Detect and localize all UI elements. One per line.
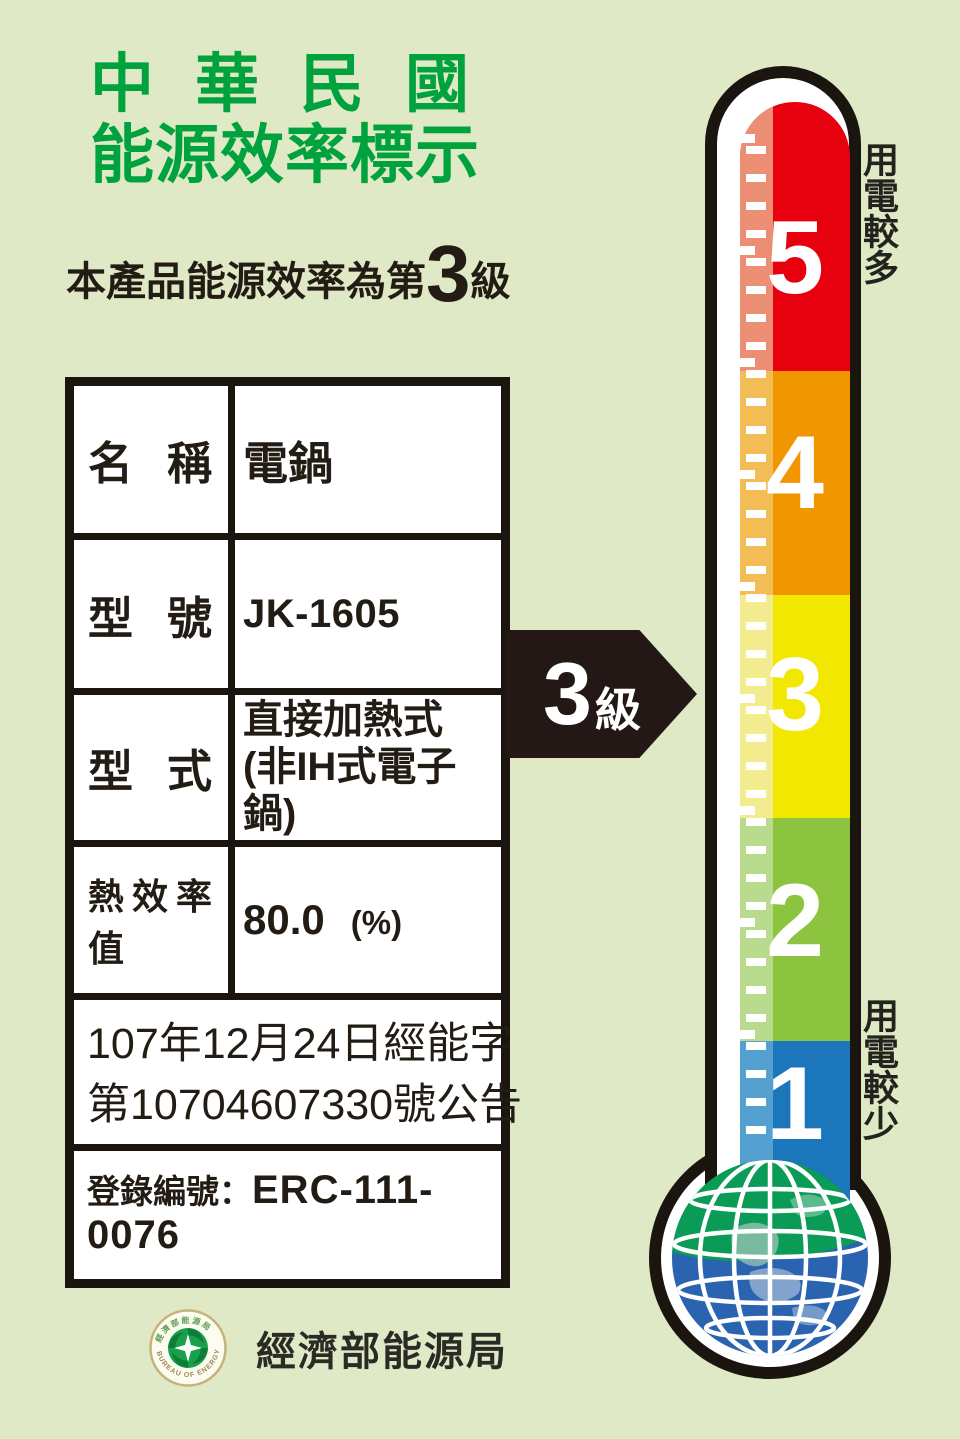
table-row-efficiency: 熱效率值 80.0(%) xyxy=(74,840,501,993)
type-value-line1: 直接加熱式 xyxy=(243,697,501,744)
table-row-type: 型式 直接加熱式 (非IH式電子鍋) xyxy=(74,688,501,840)
level-number-4: 4 xyxy=(740,419,850,527)
level-number-2: 2 xyxy=(740,867,850,975)
bureau-of-energy-seal-icon: 經濟部能源局 BUREAU OF ENERGY xyxy=(148,1308,228,1388)
level-number-3: 3 xyxy=(740,641,850,749)
model-label-cell: 型號 xyxy=(74,540,235,688)
efficiency-value-cell: 80.0(%) xyxy=(235,847,501,993)
label-title: 中華民國 能源效率標示 xyxy=(90,48,510,190)
type-value-line2: (非IH式電子鍋) xyxy=(243,744,501,838)
name-value: 電鍋 xyxy=(243,427,333,492)
tube-column: 5 4 3 2 1 xyxy=(740,102,850,1202)
name-label: 名稱 xyxy=(88,427,212,492)
energy-efficiency-label: 中華民國 能源效率標示 本產品能源效率為第3級 名稱 電鍋 型號 JK-1605… xyxy=(0,0,960,1439)
footer: 經濟部能源局 BUREAU OF ENERGY 經濟部能源局 xyxy=(148,1308,508,1388)
title-line-1: 中華民國 xyxy=(90,48,510,120)
registration: 登錄編號：ERC-111-0076 xyxy=(74,1144,501,1279)
grade-arrow-suffix: 級 xyxy=(595,674,641,740)
model-value-cell: JK-1605 xyxy=(235,540,501,688)
title-line-2: 能源效率標示 xyxy=(90,120,510,190)
type-value-cell: 直接加熱式 (非IH式電子鍋) xyxy=(235,695,501,840)
efficiency-label: 熱效率值 xyxy=(88,868,212,972)
grade-arrow-number: 3 xyxy=(543,650,592,738)
efficiency-value: 80.0(%) xyxy=(243,896,402,944)
statement-grade: 3 xyxy=(426,229,471,318)
thermometer-tube: 5 4 3 2 1 xyxy=(705,66,861,1190)
announcement-line1: 107年12月24日經能字 xyxy=(87,1014,491,1075)
label-more-power: 用電較多 xyxy=(860,141,897,285)
globe-icon xyxy=(672,1160,868,1356)
announcement: 107年12月24日經能字 第10704607330號公告 xyxy=(74,993,501,1144)
spec-table: 名稱 電鍋 型號 JK-1605 型式 直接加熱式 (非IH式電子鍋) 熱效率值… xyxy=(65,377,510,1288)
level-number-5: 5 xyxy=(740,204,850,312)
statement-suffix: 級 xyxy=(471,260,511,304)
model-label: 型號 xyxy=(88,582,212,647)
registration-label: 登錄編號： xyxy=(87,1173,252,1210)
type-value: 直接加熱式 (非IH式電子鍋) xyxy=(243,697,501,838)
name-value-cell: 電鍋 xyxy=(235,386,501,533)
agency-name: 經濟部能源局 xyxy=(256,1319,508,1377)
name-label-cell: 名稱 xyxy=(74,386,235,533)
type-label-cell: 型式 xyxy=(74,695,235,840)
announcement-line2: 第10704607330號公告 xyxy=(87,1075,491,1136)
scale-long-ticks xyxy=(722,134,755,1139)
grade-arrow: 3 級 xyxy=(505,630,697,758)
efficiency-label-cell: 熱效率值 xyxy=(74,847,235,993)
efficiency-statement: 本產品能源效率為第3級 xyxy=(66,234,511,314)
level-number-1: 1 xyxy=(740,1050,850,1158)
table-row-model: 型號 JK-1605 xyxy=(74,533,501,688)
model-value: JK-1605 xyxy=(243,592,400,637)
type-label: 型式 xyxy=(88,735,212,800)
label-less-power: 用電較少 xyxy=(860,997,897,1141)
table-row-name: 名稱 電鍋 xyxy=(74,386,501,533)
statement-prefix: 本產品能源效率為第 xyxy=(66,260,426,304)
efficiency-unit: (%) xyxy=(351,904,402,941)
